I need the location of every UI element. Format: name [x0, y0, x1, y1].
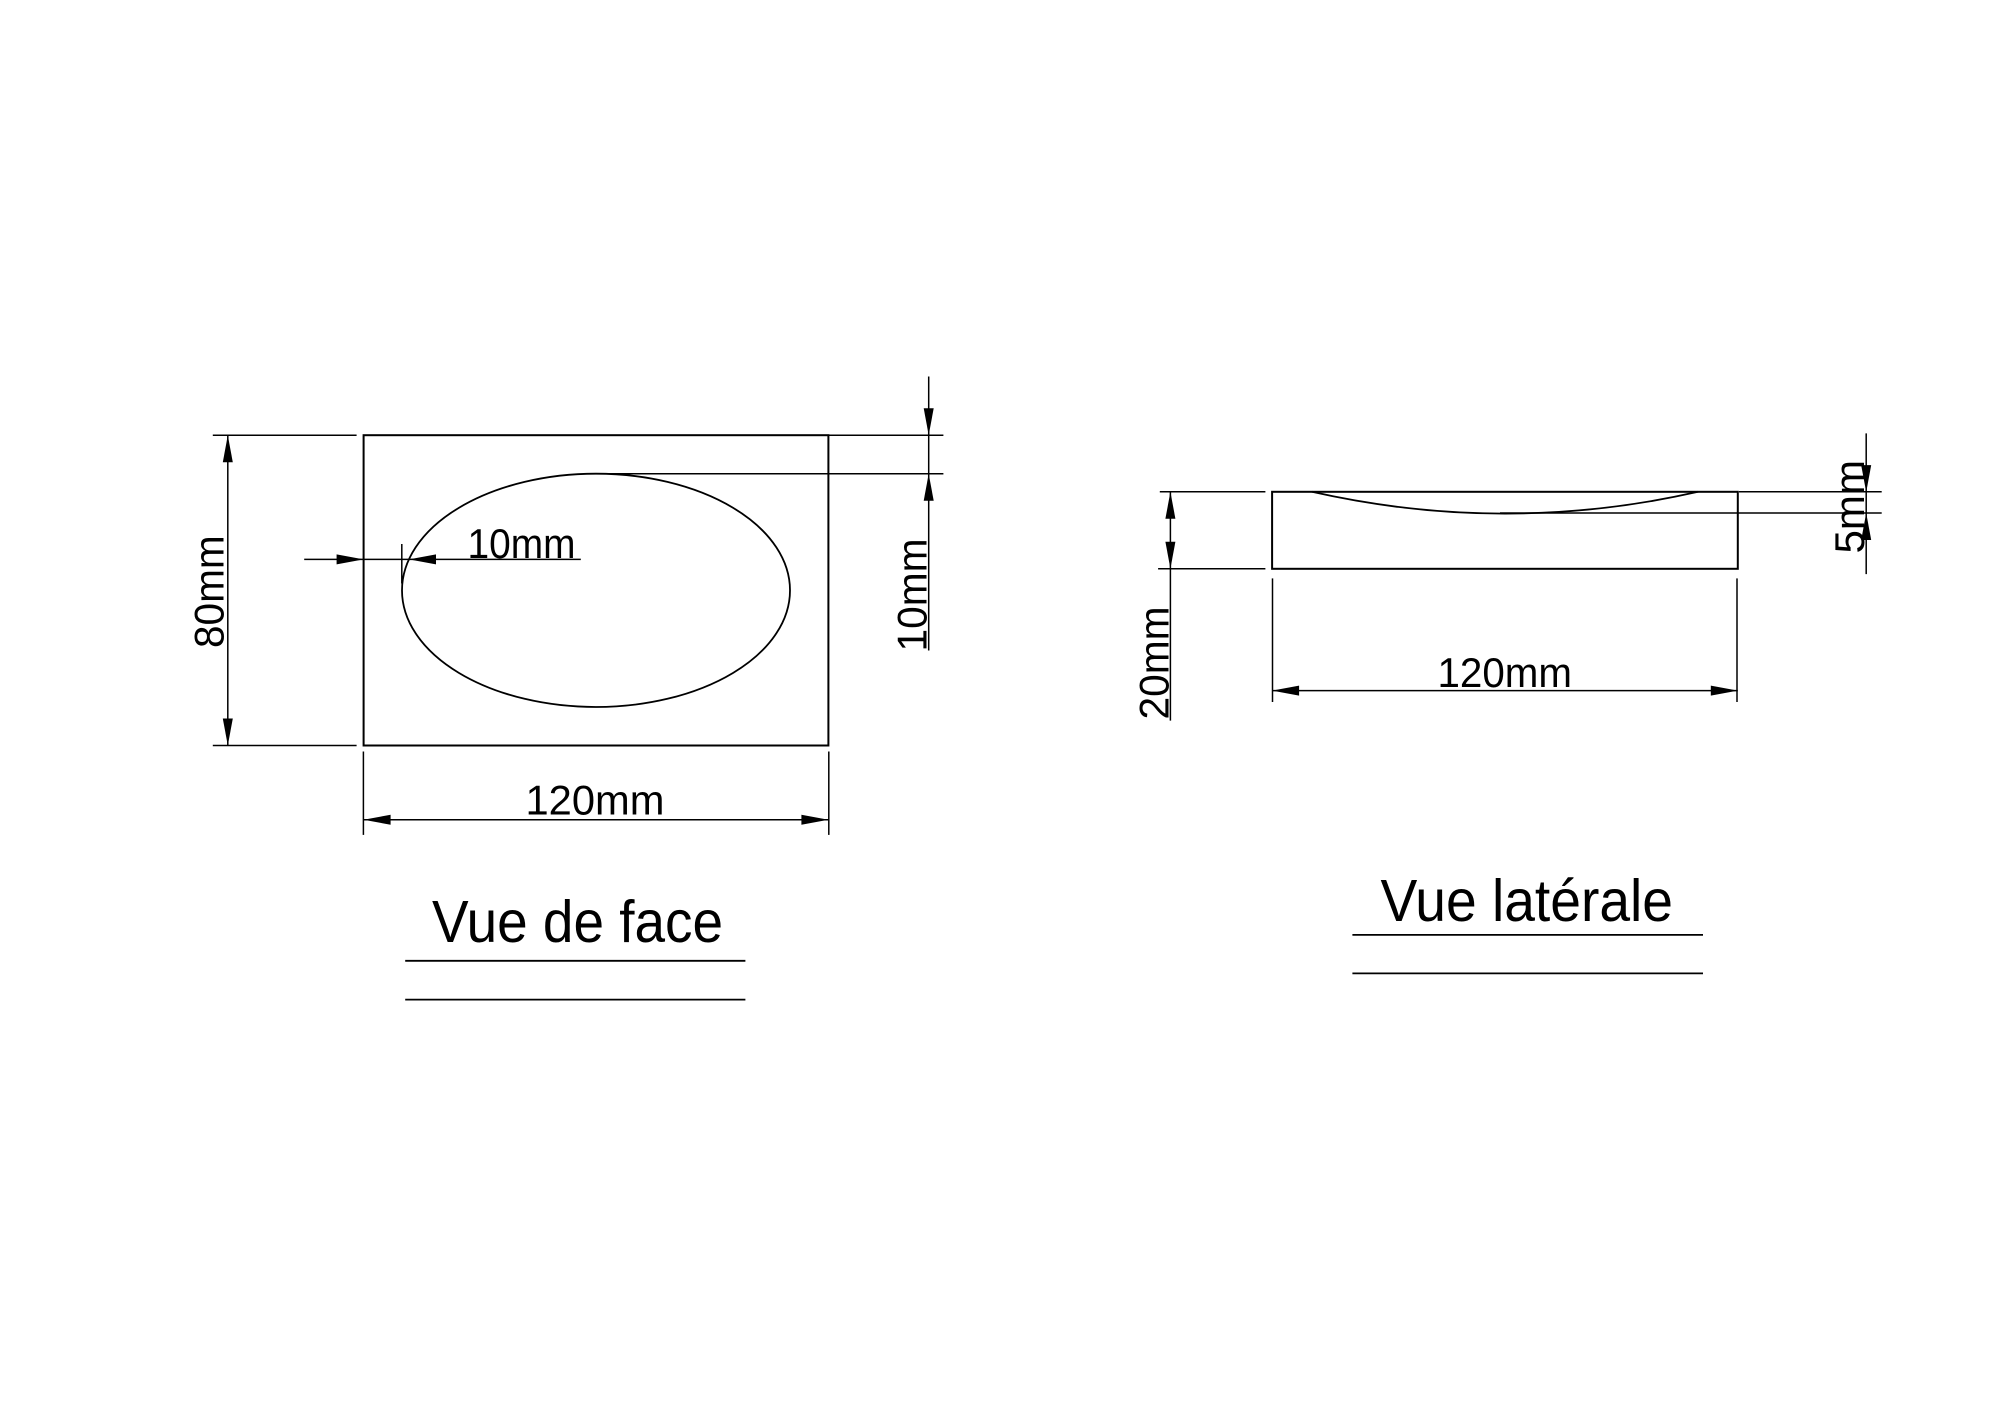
svg-text:20mm: 20mm: [1131, 607, 1178, 720]
svg-text:5mm: 5mm: [1826, 460, 1873, 554]
svg-text:10mm: 10mm: [889, 539, 936, 652]
svg-text:120mm: 120mm: [1438, 649, 1573, 696]
svg-text:Vue de face: Vue de face: [432, 889, 723, 955]
svg-text:120mm: 120mm: [526, 777, 665, 824]
svg-text:Vue latérale: Vue latérale: [1381, 868, 1674, 934]
svg-text:10mm: 10mm: [468, 520, 576, 567]
svg-text:80mm: 80mm: [186, 535, 233, 648]
